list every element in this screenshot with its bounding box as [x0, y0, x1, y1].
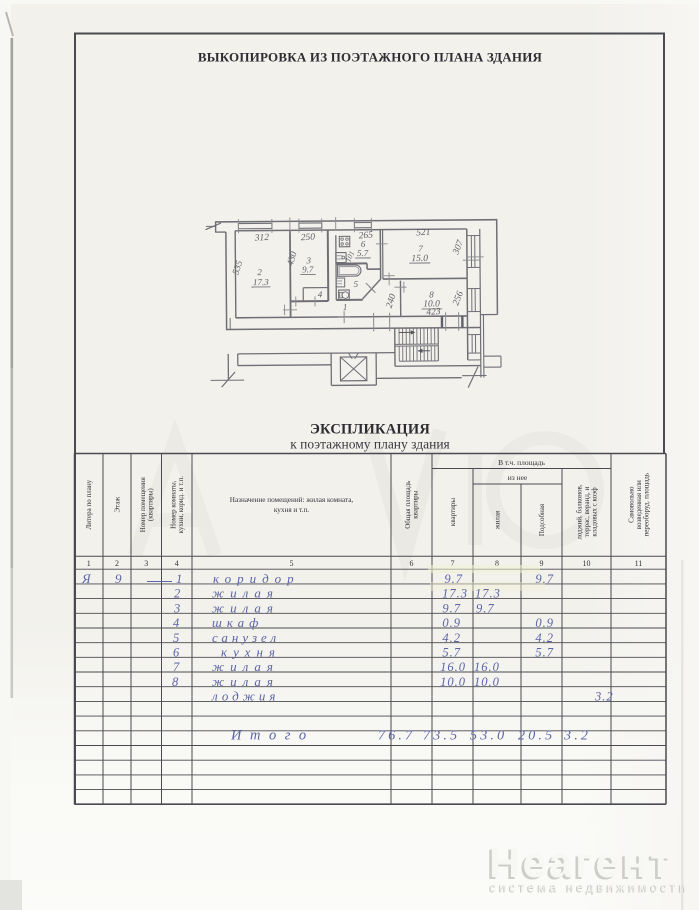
- svg-text:ЭКСПЛИКАЦИЯ: ЭКСПЛИКАЦИЯ: [310, 422, 430, 438]
- svg-text:(квартиры): (квартиры): [146, 488, 154, 521]
- svg-text:9.7: 9.7: [476, 601, 495, 615]
- svg-text:20.5: 20.5: [518, 729, 555, 744]
- svg-text:2: 2: [174, 587, 180, 601]
- svg-text:9.7: 9.7: [302, 264, 314, 274]
- svg-text:лоджия: лоджия: [211, 689, 279, 704]
- svg-text:Подсобная: Подсобная: [538, 503, 546, 536]
- svg-text:7: 7: [173, 660, 180, 674]
- svg-text:5.7: 5.7: [357, 248, 369, 258]
- svg-text:система недвижимости: система недвижимости: [490, 881, 689, 895]
- svg-text:521: 521: [416, 227, 431, 238]
- svg-text:10.0: 10.0: [474, 675, 500, 689]
- svg-text:кухня: кухня: [221, 644, 281, 659]
- svg-text:кухни, корид. и т.п.: кухни, корид. и т.п.: [177, 476, 185, 534]
- svg-text:3.2: 3.2: [594, 690, 614, 704]
- svg-text:16.0: 16.0: [474, 660, 500, 674]
- svg-text:шкаф: шкаф: [212, 615, 263, 630]
- svg-text:Литера по плану: Литера по плану: [85, 479, 93, 529]
- svg-text:250: 250: [301, 233, 316, 244]
- svg-text:0.9: 0.9: [442, 616, 461, 630]
- svg-text:1: 1: [343, 302, 348, 312]
- svg-text:к поэтажному плану здания: к поэтажному плану здания: [290, 437, 450, 452]
- svg-text:4: 4: [318, 289, 323, 299]
- svg-text:17.3: 17.3: [475, 587, 501, 601]
- svg-text:коридор: коридор: [213, 571, 300, 586]
- svg-text:4: 4: [173, 616, 179, 630]
- svg-text:3: 3: [144, 559, 148, 568]
- svg-text:Я: Я: [81, 571, 92, 586]
- svg-text:жилая: жилая: [212, 659, 279, 674]
- svg-text:жилая: жилая: [494, 510, 502, 530]
- svg-text:73.5: 73.5: [423, 729, 460, 744]
- svg-text:Назначение помещений: жилая ко: Назначение помещений: жилая комната,: [230, 496, 354, 504]
- svg-text:8: 8: [172, 675, 179, 689]
- svg-text:Этаж: Этаж: [113, 497, 121, 513]
- svg-text:4.2: 4.2: [442, 631, 461, 645]
- svg-text:кладовых с коэф: кладовых с коэф: [591, 487, 599, 537]
- svg-text:312: 312: [254, 233, 270, 244]
- svg-text:жилая: жилая: [212, 586, 279, 601]
- svg-text:10.0: 10.0: [440, 675, 466, 689]
- svg-text:9.7: 9.7: [444, 572, 463, 586]
- svg-text:6: 6: [410, 559, 414, 568]
- svg-text:4: 4: [175, 559, 179, 568]
- svg-text:15.0: 15.0: [411, 254, 428, 264]
- svg-text:9: 9: [540, 559, 544, 568]
- svg-text:5: 5: [173, 631, 179, 645]
- svg-text:10: 10: [583, 559, 591, 568]
- svg-text:4.2: 4.2: [535, 631, 554, 645]
- svg-text:квартиры: квартиры: [412, 490, 420, 518]
- svg-text:16.0: 16.0: [440, 660, 466, 674]
- svg-text:3.2: 3.2: [563, 729, 591, 744]
- svg-text:1: 1: [176, 572, 182, 586]
- svg-text:17.3: 17.3: [442, 587, 468, 601]
- svg-text:53.0: 53.0: [470, 729, 507, 744]
- svg-text:6: 6: [173, 645, 180, 659]
- svg-text:жилая: жилая: [212, 600, 279, 615]
- svg-text:из нее: из нее: [508, 473, 528, 482]
- svg-text:1: 1: [87, 559, 91, 568]
- svg-text:2: 2: [257, 267, 262, 277]
- svg-text:9: 9: [115, 571, 122, 586]
- svg-text:5.7: 5.7: [535, 645, 554, 659]
- svg-text:5: 5: [354, 279, 359, 289]
- svg-text:3: 3: [173, 601, 180, 615]
- svg-text:жилая: жилая: [212, 674, 279, 689]
- svg-text:7: 7: [418, 244, 423, 254]
- svg-text:76.7: 76.7: [378, 729, 415, 744]
- svg-text:9.7: 9.7: [535, 572, 554, 586]
- svg-text:2: 2: [115, 559, 119, 568]
- svg-text:17.3: 17.3: [253, 277, 269, 287]
- svg-text:квартиры: квартиры: [449, 498, 457, 526]
- svg-text:переоборуд. площадь: переоборуд. площадь: [643, 473, 651, 537]
- svg-text:санузел: санузел: [212, 630, 280, 645]
- svg-text:9.7: 9.7: [442, 601, 461, 615]
- svg-text:8: 8: [429, 289, 434, 299]
- svg-text:11: 11: [635, 559, 643, 568]
- svg-text:ВЫКОПИРОВКА ИЗ ПОЭТАЖНОГО ПЛАН: ВЫКОПИРОВКА ИЗ ПОЭТАЖНОГО ПЛАНА ЗДАНИЯ: [198, 50, 543, 65]
- svg-text:В т.ч. площадь: В т.ч. площадь: [498, 458, 545, 467]
- svg-text:5: 5: [290, 559, 294, 568]
- svg-text:10.0: 10.0: [423, 299, 440, 309]
- svg-text:кухня и т.п.: кухня и т.п.: [274, 506, 309, 514]
- svg-text:Итого: Итого: [230, 728, 315, 744]
- svg-text:0.9: 0.9: [535, 616, 554, 630]
- svg-text:5.7: 5.7: [442, 645, 461, 659]
